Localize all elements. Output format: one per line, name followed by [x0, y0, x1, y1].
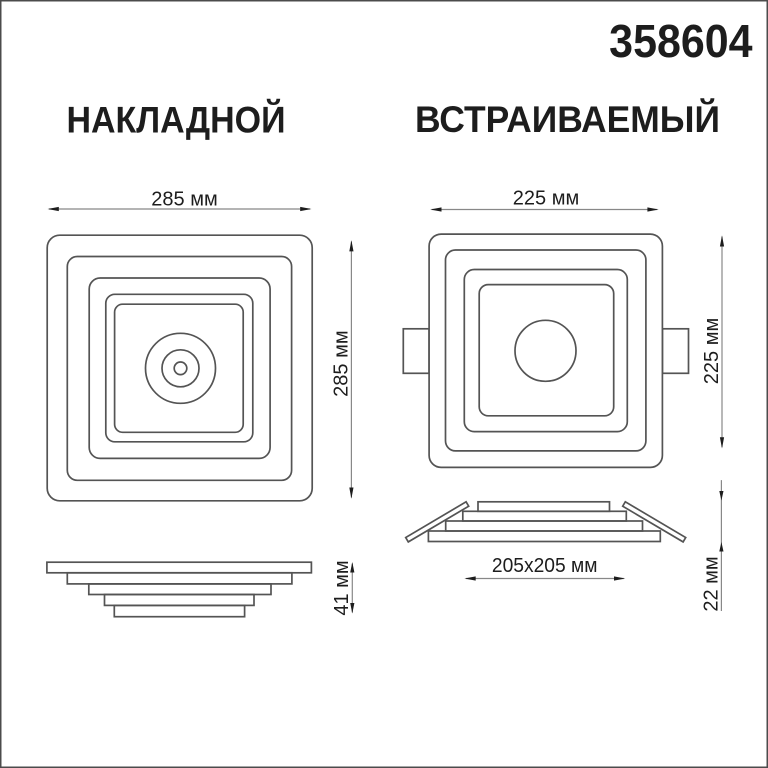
svg-text:205x205 мм: 205x205 мм — [492, 555, 598, 577]
svg-text:285 мм: 285 мм — [330, 330, 352, 396]
svg-text:225 мм: 225 мм — [701, 318, 723, 384]
svg-text:358604: 358604 — [609, 15, 752, 67]
svg-text:285 мм: 285 мм — [151, 188, 217, 210]
svg-text:ВСТРАИВАЕМЫЙ: ВСТРАИВАЕМЫЙ — [415, 97, 720, 140]
svg-text:НАКЛАДНОЙ: НАКЛАДНОЙ — [66, 99, 285, 141]
svg-text:41 мм: 41 мм — [331, 560, 353, 615]
svg-text:22 мм: 22 мм — [700, 556, 722, 611]
svg-text:225 мм: 225 мм — [513, 188, 579, 210]
